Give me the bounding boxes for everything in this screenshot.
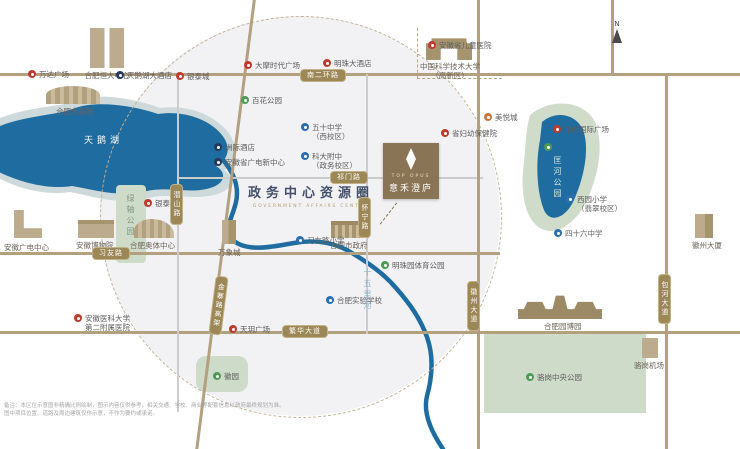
poi-damo: 大摩时代广场 — [244, 62, 300, 71]
poi-pin-icon — [116, 71, 124, 79]
poi-kdfz-label: 科大附中（政务校区） — [312, 153, 357, 170]
poi-ustc-line2: （高新区） — [431, 71, 469, 80]
project-name-cn: 意禾澄庐 — [389, 181, 433, 194]
poi-pin-icon — [214, 143, 222, 151]
road-label-huaining: 怀宁路 — [358, 197, 371, 238]
poi-pin-icon — [526, 373, 534, 381]
poi-anyi-hospital: 安徽医科大学第二附属医院 — [74, 315, 130, 332]
poi-pin-icon — [301, 123, 309, 131]
poi-pin-icon — [296, 236, 304, 244]
poi-ustc-line1: 中国科学技术大学 — [420, 62, 480, 71]
poi-pin-icon — [554, 229, 562, 237]
poi-intercontinental: 洲际酒店 — [214, 144, 255, 153]
poi-pin-icon — [566, 195, 574, 203]
poi-swan-hotel-label: 天鹅湖大酒店 — [127, 72, 172, 81]
poi-ustc-label: 中国科学技术大学（高新区） — [408, 62, 492, 80]
building-hengda-towers-icon — [90, 28, 124, 68]
poi-xiyou-school-label: 习友路小学 — [307, 237, 345, 246]
poi-pin-icon — [326, 296, 334, 304]
poi-meiyue: 美悦城 — [484, 114, 518, 123]
building-grand-theatre-icon — [46, 86, 100, 104]
poi-children-hospital: 安徽省儿童医院 — [428, 42, 492, 51]
lvzhou-park-label: 绿轴公园 — [125, 194, 136, 238]
poi-huizhou-tower-label: 徽州大厦 — [692, 240, 722, 251]
poi-xiyuan-label: 西园小学（翡翠校区） — [577, 196, 622, 213]
poi-school50w-label: 五十中学（西校区） — [312, 124, 350, 141]
poi-mingzhu-sports-label: 明珠园体育公园 — [392, 262, 445, 271]
building-mixc-icon — [222, 220, 236, 244]
building-luogang-airport-icon — [642, 338, 658, 358]
poi-school50w: 五十中学（西校区） — [301, 124, 350, 141]
poi-guangdian-label: 安徽广电中心 — [4, 242, 49, 253]
kuanghe-park-label: 匡河公园 — [552, 156, 563, 200]
shiwuli-river-label: 十五里河 — [362, 268, 373, 312]
poi-kdfz-line2: （政务校区） — [312, 162, 357, 171]
road-baohe — [665, 74, 668, 449]
poi-pin-icon — [229, 325, 237, 333]
poi-tianyue: 天玥广场 — [229, 326, 270, 335]
poi-kuanghe-pin — [544, 144, 552, 151]
poi-pin-icon — [213, 372, 221, 380]
poi-damo-label: 大摩时代广场 — [255, 62, 300, 71]
swan-lake-label: 天鹅湖 — [84, 133, 123, 146]
poi-pin-icon — [28, 70, 36, 78]
poi-school50w-line2: （西校区） — [312, 133, 350, 142]
poi-meiyue-label: 美悦城 — [495, 114, 518, 123]
poi-huiyuan-label: 徽园 — [224, 373, 239, 382]
poi-pin-icon — [381, 261, 389, 269]
compass-north-label: N — [608, 20, 626, 28]
road-label-fanhua: 繁华大道 — [282, 325, 328, 338]
poi-luogang-park: 骆岗中央公园 — [526, 374, 582, 383]
poi-guangdian-new: 安徽省广电新中心 — [214, 159, 285, 168]
poi-wanda-label: 万达广场 — [39, 71, 69, 80]
poi-pin-icon — [553, 125, 561, 133]
poi-school46: 四十六中学 — [554, 230, 603, 239]
poi-luogang-airport-label: 骆岗机场 — [634, 360, 664, 371]
poi-huiyuan: 徽园 — [213, 373, 239, 382]
poi-yintai-north-label: 银泰城 — [187, 73, 210, 82]
poi-pin-icon — [441, 129, 449, 137]
poi-anyi-line2: 第二附属医院 — [85, 324, 130, 333]
poi-jiaqiao-label: 加侨国际广场 — [564, 126, 609, 135]
poi-experimental-label: 合肥实验学校 — [337, 297, 382, 306]
poi-pin-icon — [301, 152, 309, 160]
project-name-en: TOP OPUS — [392, 174, 431, 179]
poi-xiyou-school: 习友路小学 — [296, 237, 345, 246]
poi-baihua-park: 百花公园 — [241, 97, 282, 106]
poi-grand-theatre-label: 合肥大剧院 — [56, 106, 94, 117]
road-qianshan — [177, 72, 179, 412]
poi-pin-icon — [244, 61, 252, 69]
poi-pin-icon — [428, 41, 436, 49]
poi-xiyuan-school: 西园小学（翡翠校区） — [566, 196, 622, 213]
building-museum-icon — [78, 220, 114, 238]
road-label-qimen: 祁门路 — [330, 171, 368, 184]
poi-pin-icon — [484, 113, 492, 121]
poi-mingzhu-hotel: 明珠大酒店 — [323, 60, 372, 69]
poi-intercontinental-label: 洲际酒店 — [225, 144, 255, 153]
poi-mingzhu-hotel-label: 明珠大酒店 — [334, 60, 372, 69]
zone-title-cn: 政务中心资源圈 — [246, 182, 376, 201]
poi-experimental-school: 合肥实验学校 — [326, 297, 382, 306]
location-map: 南二环路 祁门路 习友路 繁华大道 潜山路 怀宁路 金寨路高架 徽州大道 包河大… — [0, 0, 740, 449]
building-huizhou-tower-icon — [695, 214, 713, 238]
poi-baihua-park-label: 百花公园 — [252, 97, 282, 106]
poi-mingzhu-sports-park: 明珠园体育公园 — [381, 262, 445, 271]
poi-pin-icon — [323, 59, 331, 67]
poi-jiaqiao: 加侨国际广场 — [553, 126, 609, 135]
disclaimer-line1: 备注：本区位示意图非精确比例绘制，图示内容仅供参考，相关交通、学校、商业等配套信… — [4, 402, 285, 410]
poi-fuyou: 省妇幼保健院 — [441, 130, 497, 139]
poi-pin-icon — [74, 314, 82, 322]
disclaimer-line2: 图中项目位置、道路及周边建筑仅作示意，不作为要约或承诺。 — [4, 410, 285, 418]
poi-pin-icon — [176, 72, 184, 80]
project-card: TOP OPUS 意禾澄庐 — [383, 143, 439, 199]
disclaimer: 备注：本区位示意图非精确比例绘制，图示内容仅供参考，相关交通、学校、商业等配套信… — [4, 402, 285, 419]
poi-pin-icon — [544, 143, 552, 151]
poi-pin-icon — [214, 158, 222, 166]
poi-wanda: 万达广场 — [28, 71, 69, 80]
compass-arrow-icon — [612, 29, 622, 43]
road-label-xiyou: 习友路 — [92, 247, 130, 260]
poi-school46-label: 四十六中学 — [565, 230, 603, 239]
road-xiyou — [0, 252, 500, 255]
poi-fuyou-label: 省妇幼保健院 — [452, 130, 497, 139]
road-label-qianshan: 潜山路 — [170, 184, 183, 225]
road-label-baohe: 包河大道 — [658, 274, 671, 324]
poi-tianyue-label: 天玥广场 — [240, 326, 270, 335]
zone-title-en: GOVERNMENT AFFAIRS CENTER — [246, 204, 376, 209]
poi-swan-hotel: 天鹅湖大酒店 — [116, 72, 172, 81]
road-label-huizhou: 徽州大道 — [467, 281, 480, 331]
poi-guangdian-new-label: 安徽省广电新中心 — [225, 159, 285, 168]
zone-title: 政务中心资源圈 GOVERNMENT AFFAIRS CENTER — [246, 182, 376, 209]
poi-aoti-label: 合肥奥体中心 — [130, 240, 175, 251]
poi-mixc-label: 万象城 — [218, 247, 241, 258]
poi-xiyuan-line2: （翡翠校区） — [577, 205, 622, 214]
compass: N — [608, 20, 626, 43]
project-logo-icon — [406, 148, 416, 170]
poi-pin-icon — [241, 96, 249, 104]
poi-kdfz: 科大附中（政务校区） — [301, 153, 357, 170]
road-label-nanerhuan: 南二环路 — [300, 69, 346, 82]
poi-yintai-north: 银泰城 — [176, 73, 210, 82]
poi-children-hospital-label: 安徽省儿童医院 — [439, 42, 492, 51]
poi-anyi-label: 安徽医科大学第二附属医院 — [85, 315, 130, 332]
poi-yuanbo-label: 合肥园博园 — [544, 321, 582, 332]
poi-luogang-park-label: 骆岗中央公园 — [537, 374, 582, 383]
poi-pin-icon — [144, 199, 152, 207]
